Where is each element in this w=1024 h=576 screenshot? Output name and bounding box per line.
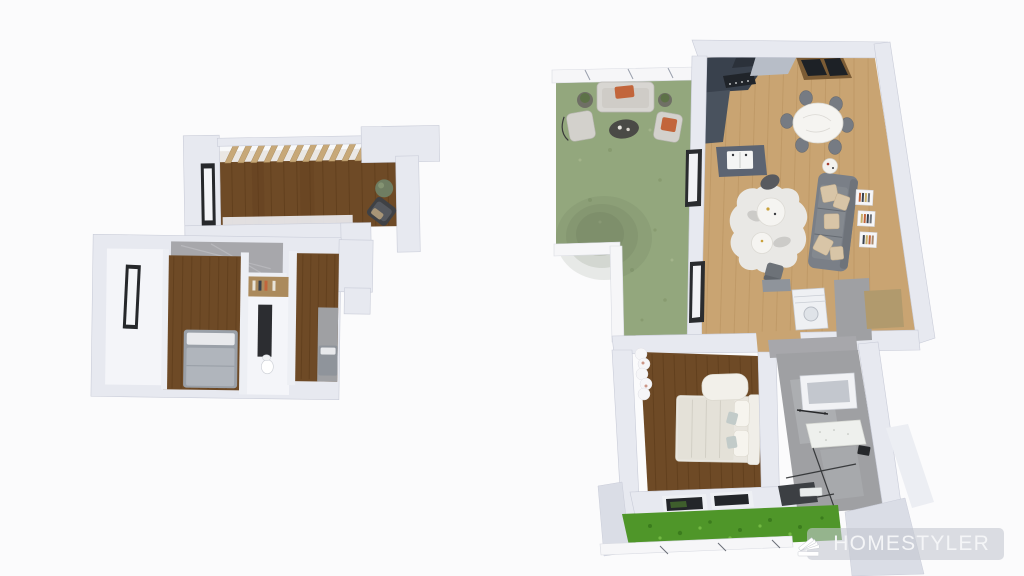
homestyler-logo-icon bbox=[793, 528, 827, 560]
towel-hook bbox=[799, 409, 801, 411]
round-coffee-table-small bbox=[752, 233, 773, 254]
upper-floor-main-block bbox=[91, 234, 373, 400]
round-coffee-table-large bbox=[757, 198, 785, 226]
upper-floor-plan bbox=[91, 125, 441, 400]
garden-low-fence-v bbox=[610, 246, 624, 342]
empty-room-window bbox=[123, 265, 141, 330]
terrace-right-wall bbox=[396, 156, 421, 252]
sink-tray bbox=[800, 487, 822, 496]
living-wall-window-lower bbox=[689, 261, 705, 323]
outdoor-armchair-right bbox=[653, 111, 683, 143]
side-table bbox=[823, 159, 838, 174]
bedroom-window-right bbox=[710, 491, 754, 509]
watermark-brand-text: HOMESTYLER bbox=[833, 528, 990, 560]
ground-floor-plan bbox=[552, 40, 935, 576]
gray-single-bed bbox=[318, 345, 337, 375]
planter-plant-right bbox=[661, 94, 670, 103]
homestyler-watermark: HOMESTYLER bbox=[807, 528, 1004, 560]
outdoor-sofa bbox=[597, 82, 654, 112]
toilet-tank bbox=[262, 355, 270, 361]
washing-machine bbox=[792, 288, 828, 330]
garden-top-fence bbox=[552, 67, 696, 83]
tree-shadow bbox=[556, 196, 652, 280]
curtain-accent bbox=[645, 385, 648, 388]
main-block-right-extension bbox=[338, 240, 373, 292]
wall-cabinet bbox=[800, 373, 857, 411]
dark-wall-panel bbox=[257, 305, 272, 357]
living-top-wall bbox=[692, 40, 888, 58]
planter-plant-left bbox=[580, 93, 590, 103]
book-shelf bbox=[859, 232, 877, 248]
island-sink bbox=[727, 151, 753, 169]
terrace-window bbox=[201, 163, 216, 225]
book-shelf bbox=[857, 211, 875, 227]
ottoman bbox=[702, 373, 749, 401]
gray-double-bed bbox=[183, 330, 238, 389]
living-wall-window-upper bbox=[685, 149, 702, 207]
hall-cabinet bbox=[762, 279, 791, 292]
curtain-accent bbox=[642, 362, 645, 365]
cream-double-bed bbox=[675, 393, 760, 464]
round-dining-table bbox=[793, 103, 843, 143]
render-canvas bbox=[0, 0, 1024, 576]
main-block-right-extension-lower bbox=[344, 288, 370, 314]
book-shelf bbox=[855, 190, 873, 206]
towel-hook bbox=[824, 412, 826, 414]
tan-closet-floor bbox=[864, 289, 904, 329]
toilet bbox=[261, 360, 273, 374]
floor-plan-render: HOMESTYLER bbox=[0, 0, 1024, 576]
